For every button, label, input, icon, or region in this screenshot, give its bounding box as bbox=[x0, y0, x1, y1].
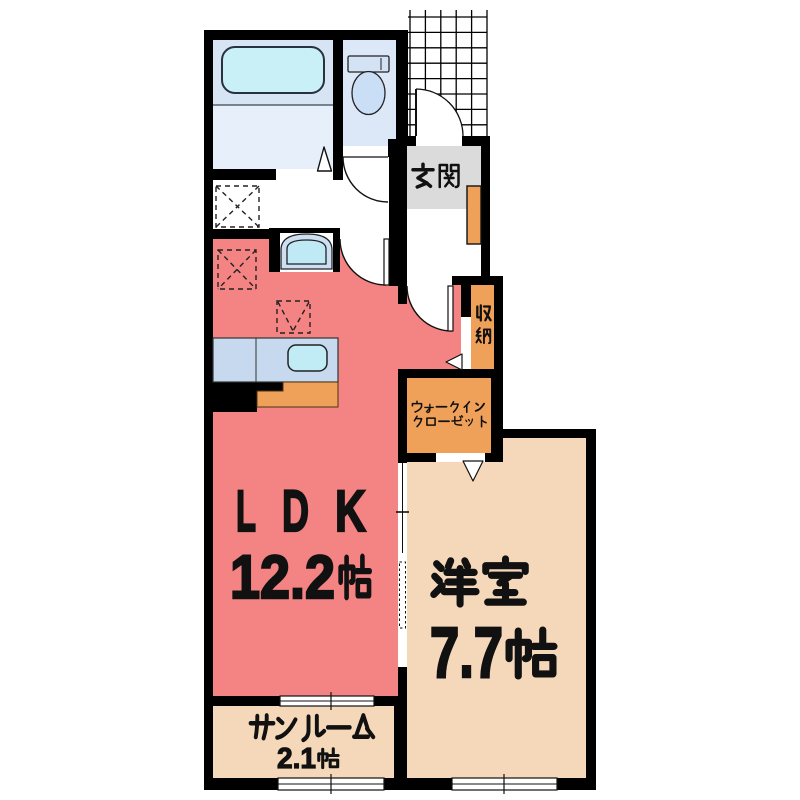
svg-text:7.7: 7.7 bbox=[430, 614, 503, 693]
svg-text:K: K bbox=[335, 479, 366, 544]
svg-text:12.2: 12.2 bbox=[230, 543, 335, 611]
svg-text:2.1: 2.1 bbox=[277, 743, 316, 775]
svg-text:D: D bbox=[282, 479, 309, 544]
svg-text:L: L bbox=[236, 479, 256, 544]
